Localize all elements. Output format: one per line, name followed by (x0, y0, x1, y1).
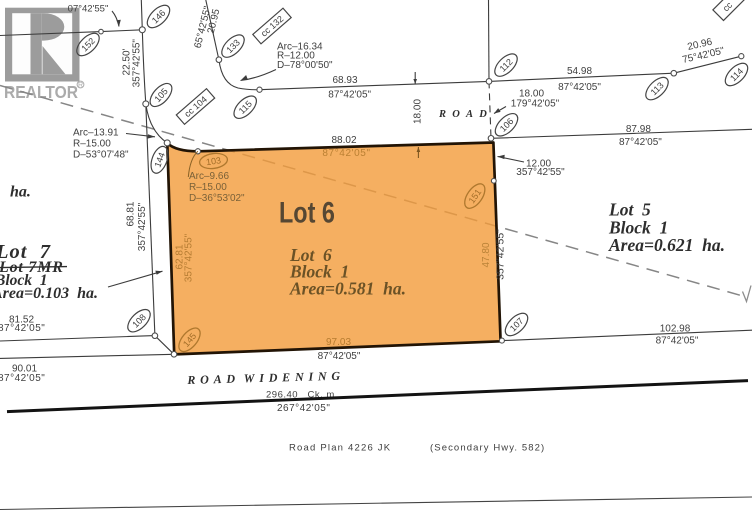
svg-text:68.81: 68.81 (126, 201, 137, 226)
svg-text:R–15.00: R–15.00 (73, 139, 111, 150)
svg-text:Arc–13.91: Arc–13.91 (73, 128, 119, 139)
svg-text:87°42'05": 87°42'05" (328, 90, 371, 101)
svg-text:(Secondary Hwy. 582): (Secondary Hwy. 582) (430, 443, 545, 454)
svg-text:Area=0.621 ha.: Area=0.621 ha. (608, 235, 725, 255)
svg-text:87°42'05": 87°42'05" (0, 323, 45, 334)
svg-text:Area=0.581 ha.: Area=0.581 ha. (289, 279, 406, 299)
svg-text:R–15.00: R–15.00 (189, 182, 227, 193)
svg-text:68.93: 68.93 (332, 75, 357, 86)
svg-text:D–36°53'02": D–36°53'02" (189, 193, 245, 204)
svg-text:Lot 6: Lot 6 (279, 196, 335, 229)
svg-text:357°42'55": 357°42'55" (137, 202, 148, 251)
svg-text:87°42'05": 87°42'05" (322, 148, 370, 159)
svg-text:357°42'55": 357°42'55" (495, 229, 507, 280)
svg-text:87°42'05": 87°42'05" (0, 373, 45, 384)
svg-text:87.98: 87.98 (626, 124, 651, 135)
svg-text:D–53°07'48": D–53°07'48" (73, 150, 129, 161)
svg-text:357°42'55": 357°42'55" (132, 39, 143, 88)
svg-text:88.02: 88.02 (331, 135, 356, 146)
svg-text:Lot 5: Lot 5 (608, 200, 651, 220)
svg-text:R: R (78, 82, 83, 89)
svg-text:97.03: 97.03 (326, 337, 351, 348)
svg-text:267°42'05": 267°42'05" (277, 403, 330, 414)
svg-text:18.00: 18.00 (413, 99, 424, 124)
svg-text:87°42'05": 87°42'05" (656, 336, 699, 347)
svg-text:Road Plan 4226 JK: Road Plan 4226 JK (289, 443, 391, 454)
svg-text:87°42'05": 87°42'05" (619, 137, 662, 148)
svg-text:102.98: 102.98 (660, 324, 691, 335)
svg-text:Arc–9.66: Arc–9.66 (189, 171, 229, 182)
svg-text:REALTOR: REALTOR (4, 82, 78, 102)
svg-text:ha.: ha. (10, 184, 31, 201)
svg-text:357°42'55": 357°42'55" (184, 233, 195, 282)
svg-text:357°42'55": 357°42'55" (516, 167, 565, 178)
svg-text:47.80: 47.80 (481, 242, 492, 267)
svg-text:179°42'05": 179°42'05" (511, 99, 560, 110)
svg-text:103: 103 (205, 155, 221, 167)
svg-text:Area=0.103 ha.: Area=0.103 ha. (0, 285, 98, 302)
svg-text:87°42'05": 87°42'05" (558, 82, 601, 93)
svg-text:D–78°00'50": D–78°00'50" (277, 60, 333, 71)
svg-text:54.98: 54.98 (567, 66, 592, 77)
svg-text:07°42'55": 07°42'55" (68, 3, 109, 14)
svg-text:R O A D: R O A D (438, 109, 489, 120)
svg-text:87°42'05": 87°42'05" (318, 351, 361, 362)
